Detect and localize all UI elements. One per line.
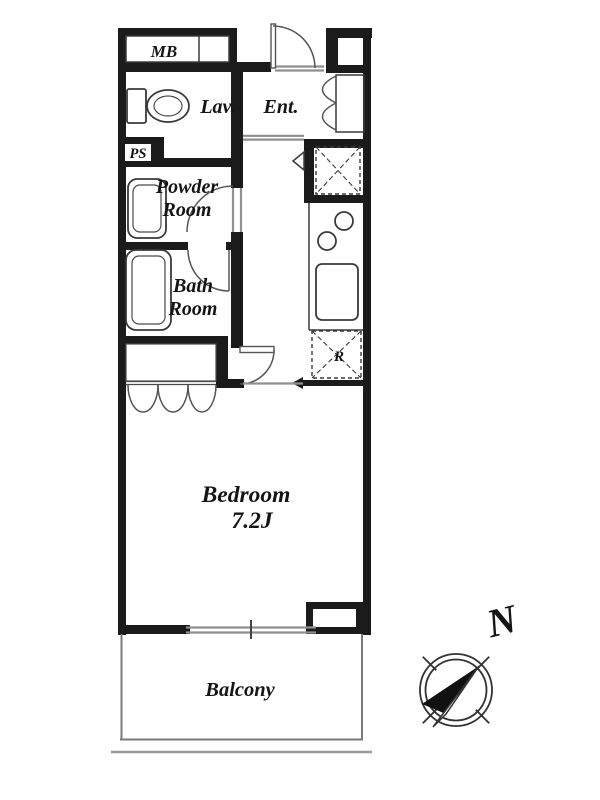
label-mb: MB xyxy=(150,42,177,61)
closet xyxy=(126,344,216,412)
compass-north-label: N xyxy=(481,595,523,646)
stove-burner-1 xyxy=(318,232,336,250)
toilet-tank xyxy=(127,89,146,123)
shoe-cabinet-bifold-2 xyxy=(323,103,337,130)
entrance xyxy=(243,24,364,140)
floorplan-page: N MB Lav. Ent. PS Powder Room Bath Room … xyxy=(0,0,600,800)
floorplan-svg: N MB Lav. Ent. PS Powder Room Bath Room … xyxy=(0,0,600,800)
label-powder-room-1: Powder xyxy=(155,176,218,198)
kitchen-sink xyxy=(316,264,358,320)
closet-outline xyxy=(126,344,216,381)
label-bedroom: Bedroom xyxy=(201,482,291,508)
wall-lav-powder xyxy=(162,158,243,167)
wall-under-fridge xyxy=(303,380,363,386)
bedroom-door-swing xyxy=(240,350,274,384)
shoe-cabinet-bifold-1 xyxy=(323,76,337,103)
meter-box-outline xyxy=(126,36,229,62)
label-lav: Lav. xyxy=(199,96,235,118)
label-ps: PS xyxy=(130,146,147,162)
bathtub-icon xyxy=(126,250,171,330)
shoe-cabinet xyxy=(336,75,364,132)
bathtub-outer xyxy=(126,250,171,330)
folding-door-arc-1 xyxy=(128,385,158,412)
bedroom-door-leaf xyxy=(240,347,274,353)
bathtub-inner xyxy=(132,256,165,324)
wall-ent-left xyxy=(237,62,271,72)
compass-spike-nw xyxy=(423,657,436,670)
toilet-bowl-inner xyxy=(154,96,182,116)
wall-bedroom-bottom-left xyxy=(118,625,190,634)
wall-corridor-upper xyxy=(231,72,243,188)
label-bath-room-2: Room xyxy=(168,298,218,320)
wall-bedroom-door-stub xyxy=(216,379,244,388)
label-ent: Ent. xyxy=(262,96,298,118)
toilet-icon xyxy=(127,89,189,123)
bedroom-corner-frame-inner xyxy=(313,609,356,627)
wall-below-ent xyxy=(326,65,363,73)
label-bedroom-size: 7.2J xyxy=(231,508,273,534)
sliding-window xyxy=(186,620,316,639)
wall-top-mb xyxy=(118,28,237,36)
label-fridge: R xyxy=(333,349,344,365)
entry-door-leaf xyxy=(271,24,276,68)
wall-washer-bottom xyxy=(304,195,363,203)
folding-door-arc-3 xyxy=(188,385,216,412)
washer-tap-marker xyxy=(293,152,304,170)
label-balcony: Balcony xyxy=(204,679,275,701)
label-bath-room-1: Bath xyxy=(172,275,213,297)
kitchen xyxy=(293,147,363,378)
wall-mb-bottom xyxy=(118,62,237,72)
wall-bath-bottom xyxy=(118,336,220,344)
stove-burner-2 xyxy=(335,212,353,230)
wall-left-outer xyxy=(118,28,126,635)
label-powder-room-2: Room xyxy=(162,199,212,221)
toilet-bowl xyxy=(147,90,189,122)
wall-powder-bath-right xyxy=(226,242,243,250)
wall-mb-right xyxy=(229,28,237,72)
folding-door-arc-2 xyxy=(158,385,188,412)
compass-spike-se xyxy=(476,710,489,723)
wall-powder-bath-left xyxy=(118,242,188,250)
meter-box xyxy=(126,36,229,62)
compass-rose: N xyxy=(420,595,523,727)
entry-door-swing xyxy=(273,26,315,68)
compass-spike-sw xyxy=(423,710,436,723)
wall-washer-left xyxy=(304,139,314,203)
